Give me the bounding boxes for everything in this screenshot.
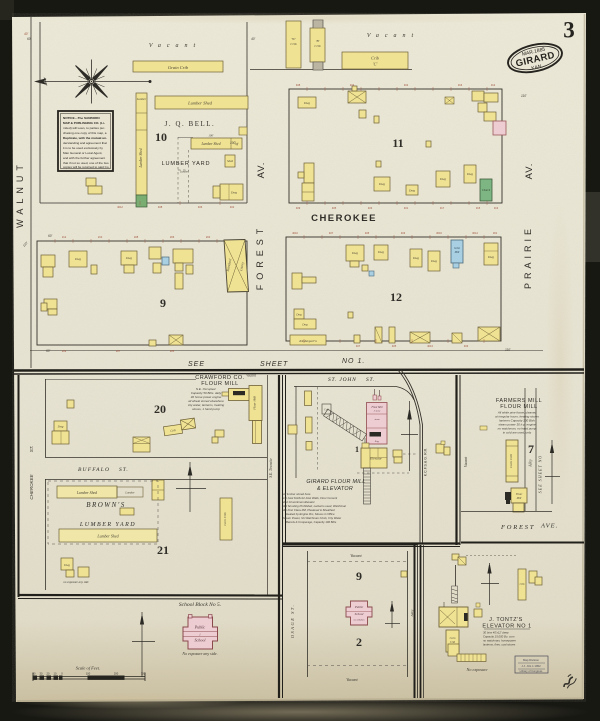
svg-text:Mill: Mill — [516, 497, 522, 500]
svg-text:Lumber Shed: Lumber Shed — [139, 148, 143, 168]
svg-text:1: 1 — [355, 445, 359, 454]
svg-text:Dwg: Dwg — [439, 177, 446, 181]
svg-text:407: 407 — [356, 344, 361, 348]
svg-text:7: 7 — [528, 442, 534, 456]
svg-text:BUFFALO: BUFFALO — [78, 467, 110, 473]
svg-text:Eng.: Eng. — [374, 440, 380, 443]
svg-text:'B': 'B' — [316, 39, 320, 43]
svg-text:Lumber: Lumber — [136, 97, 147, 101]
svg-text:Crib: Crib — [450, 641, 456, 644]
svg-text:no exposure any side: no exposure any side — [63, 580, 89, 584]
svg-text:3 story: 3 story — [374, 410, 382, 413]
svg-text:2: 2 — [356, 635, 362, 649]
svg-text:PRAIRIE: PRAIRIE — [523, 225, 533, 289]
svg-text:FLOUR MILL: FLOUR MILL — [500, 404, 537, 410]
svg-text:208: 208 — [134, 235, 139, 239]
svg-text:CHEROKEE: CHEROKEE — [29, 473, 34, 499]
svg-text:110': 110' — [505, 348, 511, 352]
svg-text:300: 300 — [141, 672, 146, 676]
svg-text:60': 60' — [48, 234, 53, 238]
svg-text:SHEET: SHEET — [260, 361, 288, 368]
svg-text:School: School — [355, 612, 364, 616]
svg-text:CHEROKEE: CHEROKEE — [311, 213, 377, 224]
svg-text:200: 200 — [114, 672, 119, 676]
svg-text:Dwg: Dwg — [125, 256, 132, 260]
svg-text:chasing one copy of this map,: chasing one copy of this map, a — [63, 131, 107, 135]
svg-text:Elevator: Elevator — [369, 457, 382, 461]
svg-text:316: 316 — [458, 83, 463, 87]
svg-text:No exposure: No exposure — [466, 667, 488, 672]
svg-text:Lumber Shed: Lumber Shed — [96, 534, 119, 539]
svg-text:SEE SHEET NO: SEE SHEET NO — [538, 455, 543, 493]
svg-text:408: 408 — [296, 83, 301, 87]
svg-text:Church: Church — [482, 189, 491, 192]
svg-text:20: 20 — [154, 402, 166, 416]
svg-text:LUMBER YARD: LUMBER YARD — [162, 161, 211, 167]
svg-text:MAP & PUBLISHING CO. (Li-: MAP & PUBLISHING CO. (Li- — [63, 121, 105, 125]
svg-text:Grist: Grist — [454, 247, 460, 250]
svg-text:3016: 3016 — [436, 231, 442, 235]
svg-text:Corn: Corn — [450, 637, 456, 640]
svg-text:Man General or Local Agent,: Man General or Local Agent, — [63, 151, 103, 155]
svg-text:Vacant: Vacant — [367, 33, 419, 39]
svg-text:FOREST: FOREST — [255, 224, 265, 291]
svg-text:Alley: Alley — [410, 609, 414, 617]
svg-text:Crib: Crib — [520, 583, 525, 586]
svg-text:207: 207 — [116, 349, 121, 353]
svg-text:4012: 4012 — [117, 205, 123, 209]
svg-text:405: 405 — [332, 206, 337, 210]
svg-text:Vacant: Vacant — [346, 677, 358, 682]
svg-text:11: 11 — [392, 136, 403, 150]
svg-text:40': 40' — [24, 32, 29, 36]
svg-text:3014: 3014 — [472, 231, 478, 235]
svg-text:Flour Mill: Flour Mill — [253, 396, 257, 410]
svg-text:301: 301 — [493, 231, 498, 235]
svg-text:Dwg: Dwg — [487, 255, 494, 259]
svg-text:Crib: Crib — [170, 428, 177, 433]
svg-text:12: 12 — [390, 290, 402, 304]
svg-text:LUMBER YARD: LUMBER YARD — [79, 522, 136, 528]
svg-text:312: 312 — [491, 83, 496, 87]
svg-text:209: 209 — [62, 349, 67, 353]
svg-text:& ELEVATOR: & ELEVATOR — [317, 486, 353, 492]
svg-text:3: 3 — [563, 18, 575, 43]
svg-text:Dwg: Dwg — [351, 251, 358, 255]
svg-text:K.C.F.S.& G. R.R.: K.C.F.S.& G. R.R. — [424, 448, 428, 477]
svg-text:Vacant: Vacant — [464, 456, 468, 467]
svg-text:403: 403 — [401, 231, 406, 235]
svg-text:Vacant: Vacant — [149, 43, 201, 49]
svg-text:Alley: Alley — [529, 459, 533, 468]
svg-text:'C': 'C' — [373, 62, 378, 67]
svg-text:Lumber Shed: Lumber Shed — [76, 491, 97, 495]
svg-text:Dwg: Dwg — [74, 257, 81, 261]
svg-text:402: 402 — [404, 83, 409, 87]
svg-text:Duplicate, with the mutual un-: Duplicate, with the mutual un- — [63, 136, 107, 140]
svg-text:Crib: Crib — [314, 44, 321, 48]
svg-text:FOREST: FOREST — [500, 524, 535, 531]
svg-text:Public: Public — [194, 625, 206, 630]
svg-text:J. TONTZ'S: J. TONTZ'S — [489, 617, 523, 623]
svg-text:and with the further agreement: and with the further agreement — [63, 156, 105, 160]
svg-text:205: 205 — [170, 349, 175, 353]
svg-text:409: 409 — [296, 206, 301, 210]
svg-text:'W': 'W' — [291, 37, 296, 41]
svg-text:315: 315 — [476, 206, 481, 210]
svg-text:407: 407 — [329, 231, 334, 235]
svg-text:Flour: Flour — [515, 493, 523, 496]
svg-text:401: 401 — [404, 206, 409, 210]
svg-text:404: 404 — [350, 83, 355, 87]
svg-text:Kindergart'n: Kindergart'n — [298, 339, 317, 343]
svg-text:no children: no children — [354, 619, 366, 622]
svg-text:School Block No 5.: School Block No 5. — [179, 602, 221, 608]
svg-text:Dwg: Dwg — [303, 101, 310, 105]
svg-text:in cold are used, only: in cold are used, only — [503, 431, 532, 435]
svg-text:Lumber: Lumber — [179, 171, 189, 174]
svg-text:stoves, 1 hand pump: stoves, 1 hand pump — [192, 407, 220, 411]
svg-text:Dwg: Dwg — [430, 259, 437, 263]
svg-text:J.J. JUL 1 1952: J.J. JUL 1 1952 — [521, 664, 541, 668]
svg-text:NOTICE.--The SANBORN: NOTICE.--The SANBORN — [63, 116, 100, 120]
svg-text:403: 403 — [368, 206, 373, 210]
svg-text:402: 402 — [230, 205, 235, 209]
svg-text:Lumber Shed: Lumber Shed — [187, 101, 213, 106]
svg-text:405: 405 — [392, 344, 397, 348]
svg-text:ELEVATOR NO 1: ELEVATOR NO 1 — [482, 624, 531, 630]
svg-text:School: School — [195, 638, 207, 643]
svg-text:4010: 4010 — [292, 231, 298, 235]
svg-text:206: 206 — [170, 235, 175, 239]
svg-text:WALNUT: WALNUT — [15, 160, 25, 228]
svg-text:317: 317 — [440, 206, 445, 210]
svg-text:derstanding and agreement that: derstanding and agreement that — [63, 141, 107, 145]
svg-text:SEE: SEE — [188, 361, 205, 368]
svg-text:it is to be used exclusively b: it is to be used exclusively by — [63, 146, 103, 150]
svg-text:S.E. Townsite: S.E. Townsite — [269, 458, 273, 478]
svg-text:110': 110' — [521, 94, 527, 98]
svg-text:Corn Crib: Corn Crib — [223, 512, 227, 526]
svg-text:Dwg: Dwg — [63, 563, 70, 567]
svg-text:9: 9 — [356, 569, 362, 583]
svg-text:Crib: Crib — [371, 56, 379, 61]
svg-text:Scale of Feet.: Scale of Feet. — [76, 666, 101, 671]
svg-text:10: 10 — [155, 130, 167, 144]
svg-text:Map Division: Map Division — [523, 658, 539, 662]
svg-text:212: 212 — [62, 235, 67, 239]
svg-text:Dwg: Dwg — [377, 250, 384, 254]
svg-text:ST.: ST. — [119, 467, 129, 473]
svg-text:AV.: AV. — [524, 163, 535, 180]
svg-text:403: 403 — [464, 344, 469, 348]
svg-text:100': 100' — [208, 134, 214, 138]
svg-text:Barrels & Cooperage, Capacity: Barrels & Cooperage, Capacity 100 Bbls — [286, 520, 337, 524]
svg-text:Dwg: Dwg — [295, 314, 302, 317]
svg-text:Lumber: Lumber — [124, 491, 135, 495]
svg-text:Crib: Crib — [290, 42, 297, 46]
svg-text:AVE.: AVE. — [540, 523, 558, 530]
svg-text:313: 313 — [494, 206, 499, 210]
svg-text:ST. JOHN: ST. JOHN — [328, 377, 357, 383]
svg-text:100': 100' — [230, 141, 236, 145]
svg-text:Lumber Shed: Lumber Shed — [200, 142, 220, 146]
svg-text:ST.: ST. — [366, 377, 375, 383]
svg-text:Crib: Crib — [324, 409, 329, 412]
svg-text:Vacant: Vacant — [350, 553, 362, 558]
svg-text:copies will be returned to sai: copies will be returned to said Co. — [63, 165, 110, 169]
svg-text:Dwg: Dwg — [57, 425, 64, 429]
svg-text:stone: stone — [374, 418, 379, 421]
svg-text:Dwg: Dwg — [412, 256, 419, 260]
svg-text:Grain Crib: Grain Crib — [168, 65, 189, 70]
svg-text:Library of Congress: Library of Congress — [520, 669, 543, 673]
svg-text:4013: 4013 — [427, 344, 433, 348]
svg-text:Shed: Shed — [227, 159, 233, 163]
svg-text:J. Q. BELL.: J. Q. BELL. — [165, 121, 216, 128]
svg-text:210: 210 — [98, 235, 103, 239]
svg-text:40': 40' — [251, 37, 256, 41]
svg-text:60': 60' — [27, 37, 32, 41]
svg-text:408: 408 — [158, 205, 163, 209]
svg-text:Vacant: Vacant — [246, 374, 257, 378]
svg-text:Dwg: Dwg — [466, 172, 473, 176]
svg-text:mited) will Loan, to parties p: mited) will Loan, to parties pur- — [63, 126, 105, 130]
svg-text:Public: Public — [354, 605, 364, 609]
svg-text:Mill: Mill — [454, 251, 460, 254]
svg-text:ST.: ST. — [29, 445, 34, 452]
svg-text:Dwg: Dwg — [230, 191, 237, 195]
svg-text:Dwg: Dwg — [378, 182, 385, 186]
svg-text:21: 21 — [157, 543, 169, 557]
svg-text:GIRARD FLOUR MILL: GIRARD FLOUR MILL — [306, 479, 365, 485]
svg-text:lanterns, fires, coal stoves: lanterns, fires, coal stoves — [483, 643, 516, 647]
svg-text:Dwg: Dwg — [408, 189, 415, 193]
svg-text:60': 60' — [46, 349, 51, 353]
svg-text:Dwg: Dwg — [301, 324, 308, 327]
svg-text:NO 1.: NO 1. — [342, 358, 365, 365]
svg-text:406: 406 — [198, 205, 203, 209]
svg-text:Corn Crib: Corn Crib — [509, 454, 513, 468]
svg-text:405: 405 — [365, 231, 370, 235]
svg-text:9: 9 — [160, 296, 166, 310]
svg-text:AV.: AV. — [256, 162, 267, 179]
svg-text:204: 204 — [206, 235, 211, 239]
svg-text:100: 100 — [86, 672, 91, 676]
svg-text:OSAGE ST.: OSAGE ST. — [290, 604, 295, 638]
svg-text:No exposure any side.: No exposure any side. — [181, 651, 217, 656]
